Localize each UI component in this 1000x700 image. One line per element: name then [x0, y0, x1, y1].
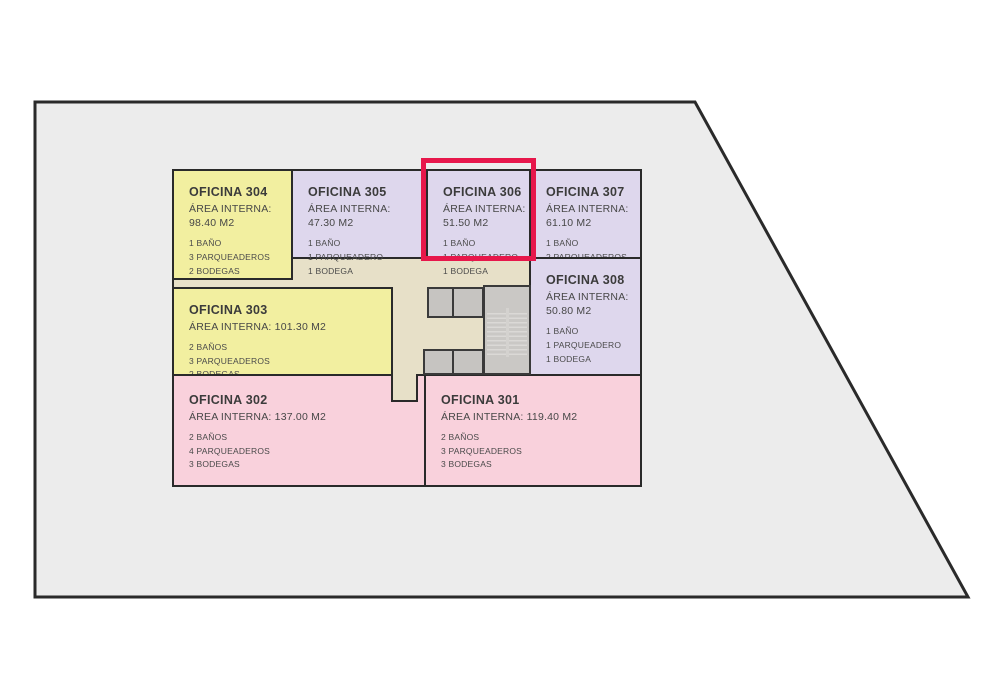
room-oficina-305[interactable]: OFICINA 305 ÁREA INTERNA: 47.30 M2 1 BAÑ… — [291, 169, 428, 259]
room-title: OFICINA 305 — [308, 185, 411, 199]
room-oficina-301[interactable]: OFICINA 301 ÁREA INTERNA: 119.40 M2 2 BA… — [424, 374, 642, 487]
room-features: 1 BAÑO 3 PARQUEADEROS 2 BODEGAS — [189, 237, 276, 278]
room-features: 1 BAÑO 1 PARQUEADERO 1 BODEGA — [308, 237, 411, 278]
room-features: 2 BAÑOS 3 PARQUEADEROS 3 BODEGAS — [441, 431, 625, 472]
room-title: OFICINA 307 — [546, 185, 625, 199]
room-title: OFICINA 308 — [546, 273, 625, 287]
room-area: ÁREA INTERNA: 51.50 M2 — [443, 202, 514, 230]
room-area: ÁREA INTERNA: 61.10 M2 — [546, 202, 625, 230]
room-area: ÁREA INTERNA: 101.30 M2 — [189, 320, 376, 334]
room-area: ÁREA INTERNA: 50.80 M2 — [546, 290, 625, 318]
room-title: OFICINA 301 — [441, 393, 625, 407]
room-title: OFICINA 303 — [189, 303, 376, 317]
stairwell — [483, 285, 531, 375]
room-area: ÁREA INTERNA: 137.00 M2 — [189, 410, 409, 424]
service-shaft-1 — [423, 349, 454, 375]
room-title: OFICINA 304 — [189, 185, 276, 199]
room-oficina-304[interactable]: OFICINA 304 ÁREA INTERNA: 98.40 M2 1 BAÑ… — [172, 169, 293, 280]
floorplan-page: OFICINA 304 ÁREA INTERNA: 98.40 M2 1 BAÑ… — [0, 0, 1000, 700]
room-title: OFICINA 306 — [443, 185, 514, 199]
room-area: ÁREA INTERNA: 98.40 M2 — [189, 202, 276, 230]
core-corridor-notch — [391, 374, 418, 402]
service-shaft-2 — [452, 349, 484, 375]
elevator-shaft-1 — [427, 287, 454, 318]
room-oficina-308[interactable]: OFICINA 308 ÁREA INTERNA: 50.80 M2 1 BAÑ… — [529, 257, 642, 376]
room-area: ÁREA INTERNA: 47.30 M2 — [308, 202, 411, 230]
room-oficina-306[interactable]: OFICINA 306 ÁREA INTERNA: 51.50 M2 1 BAÑ… — [426, 169, 531, 259]
room-oficina-302[interactable]: OFICINA 302 ÁREA INTERNA: 137.00 M2 2 BA… — [172, 374, 426, 487]
room-oficina-307[interactable]: OFICINA 307 ÁREA INTERNA: 61.10 M2 1 BAÑ… — [529, 169, 642, 259]
room-area: ÁREA INTERNA: 119.40 M2 — [441, 410, 625, 424]
room-features: 1 BAÑO 1 PARQUEADERO 1 BODEGA — [443, 237, 514, 278]
stair-rail-icon — [506, 308, 509, 357]
room-oficina-303[interactable]: OFICINA 303 ÁREA INTERNA: 101.30 M2 2 BA… — [172, 287, 393, 376]
room-features: 2 BAÑOS 4 PARQUEADEROS 3 BODEGAS — [189, 431, 409, 472]
elevator-shaft-2 — [452, 287, 484, 318]
room-features: 1 BAÑO 1 PARQUEADERO 1 BODEGA — [546, 325, 625, 366]
room-title: OFICINA 302 — [189, 393, 409, 407]
